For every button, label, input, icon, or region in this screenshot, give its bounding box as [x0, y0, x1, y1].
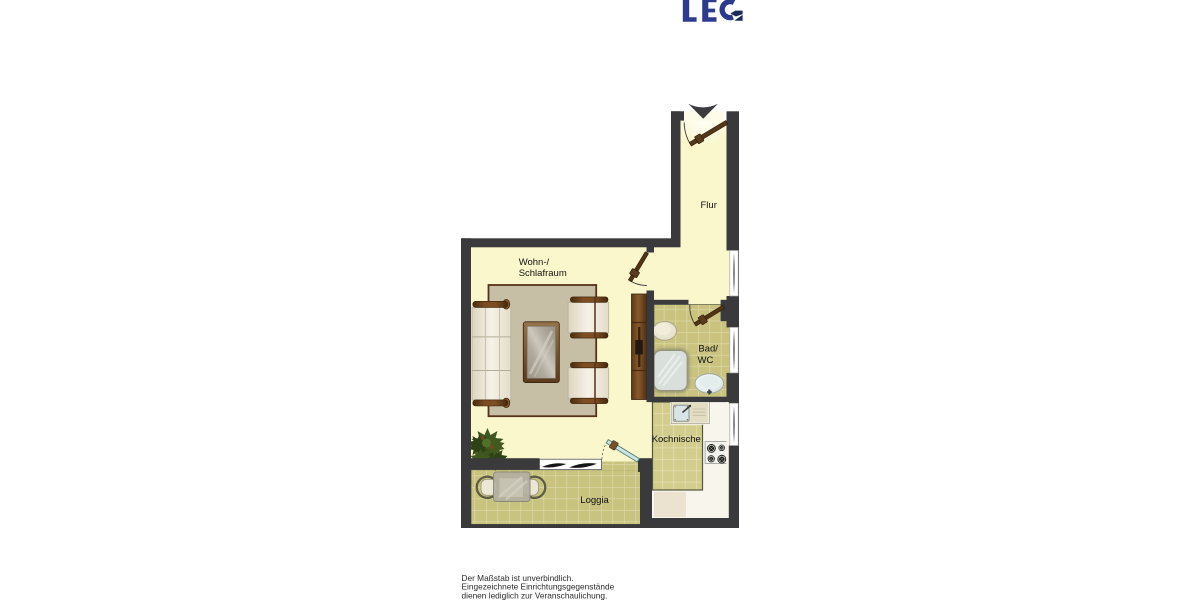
svg-text:Flur: Flur — [701, 200, 717, 211]
svg-text:Loggia: Loggia — [580, 495, 609, 506]
svg-text:WC: WC — [698, 355, 714, 366]
svg-text:Wohn-/: Wohn-/ — [519, 257, 550, 268]
svg-text:dienen lediglich zur Veranscha: dienen lediglich zur Veranschaulichung. — [462, 591, 608, 600]
svg-text:Bad/: Bad/ — [698, 343, 718, 354]
svg-text:Kochnische: Kochnische — [652, 434, 701, 445]
svg-text:Schlafraum: Schlafraum — [519, 268, 567, 279]
